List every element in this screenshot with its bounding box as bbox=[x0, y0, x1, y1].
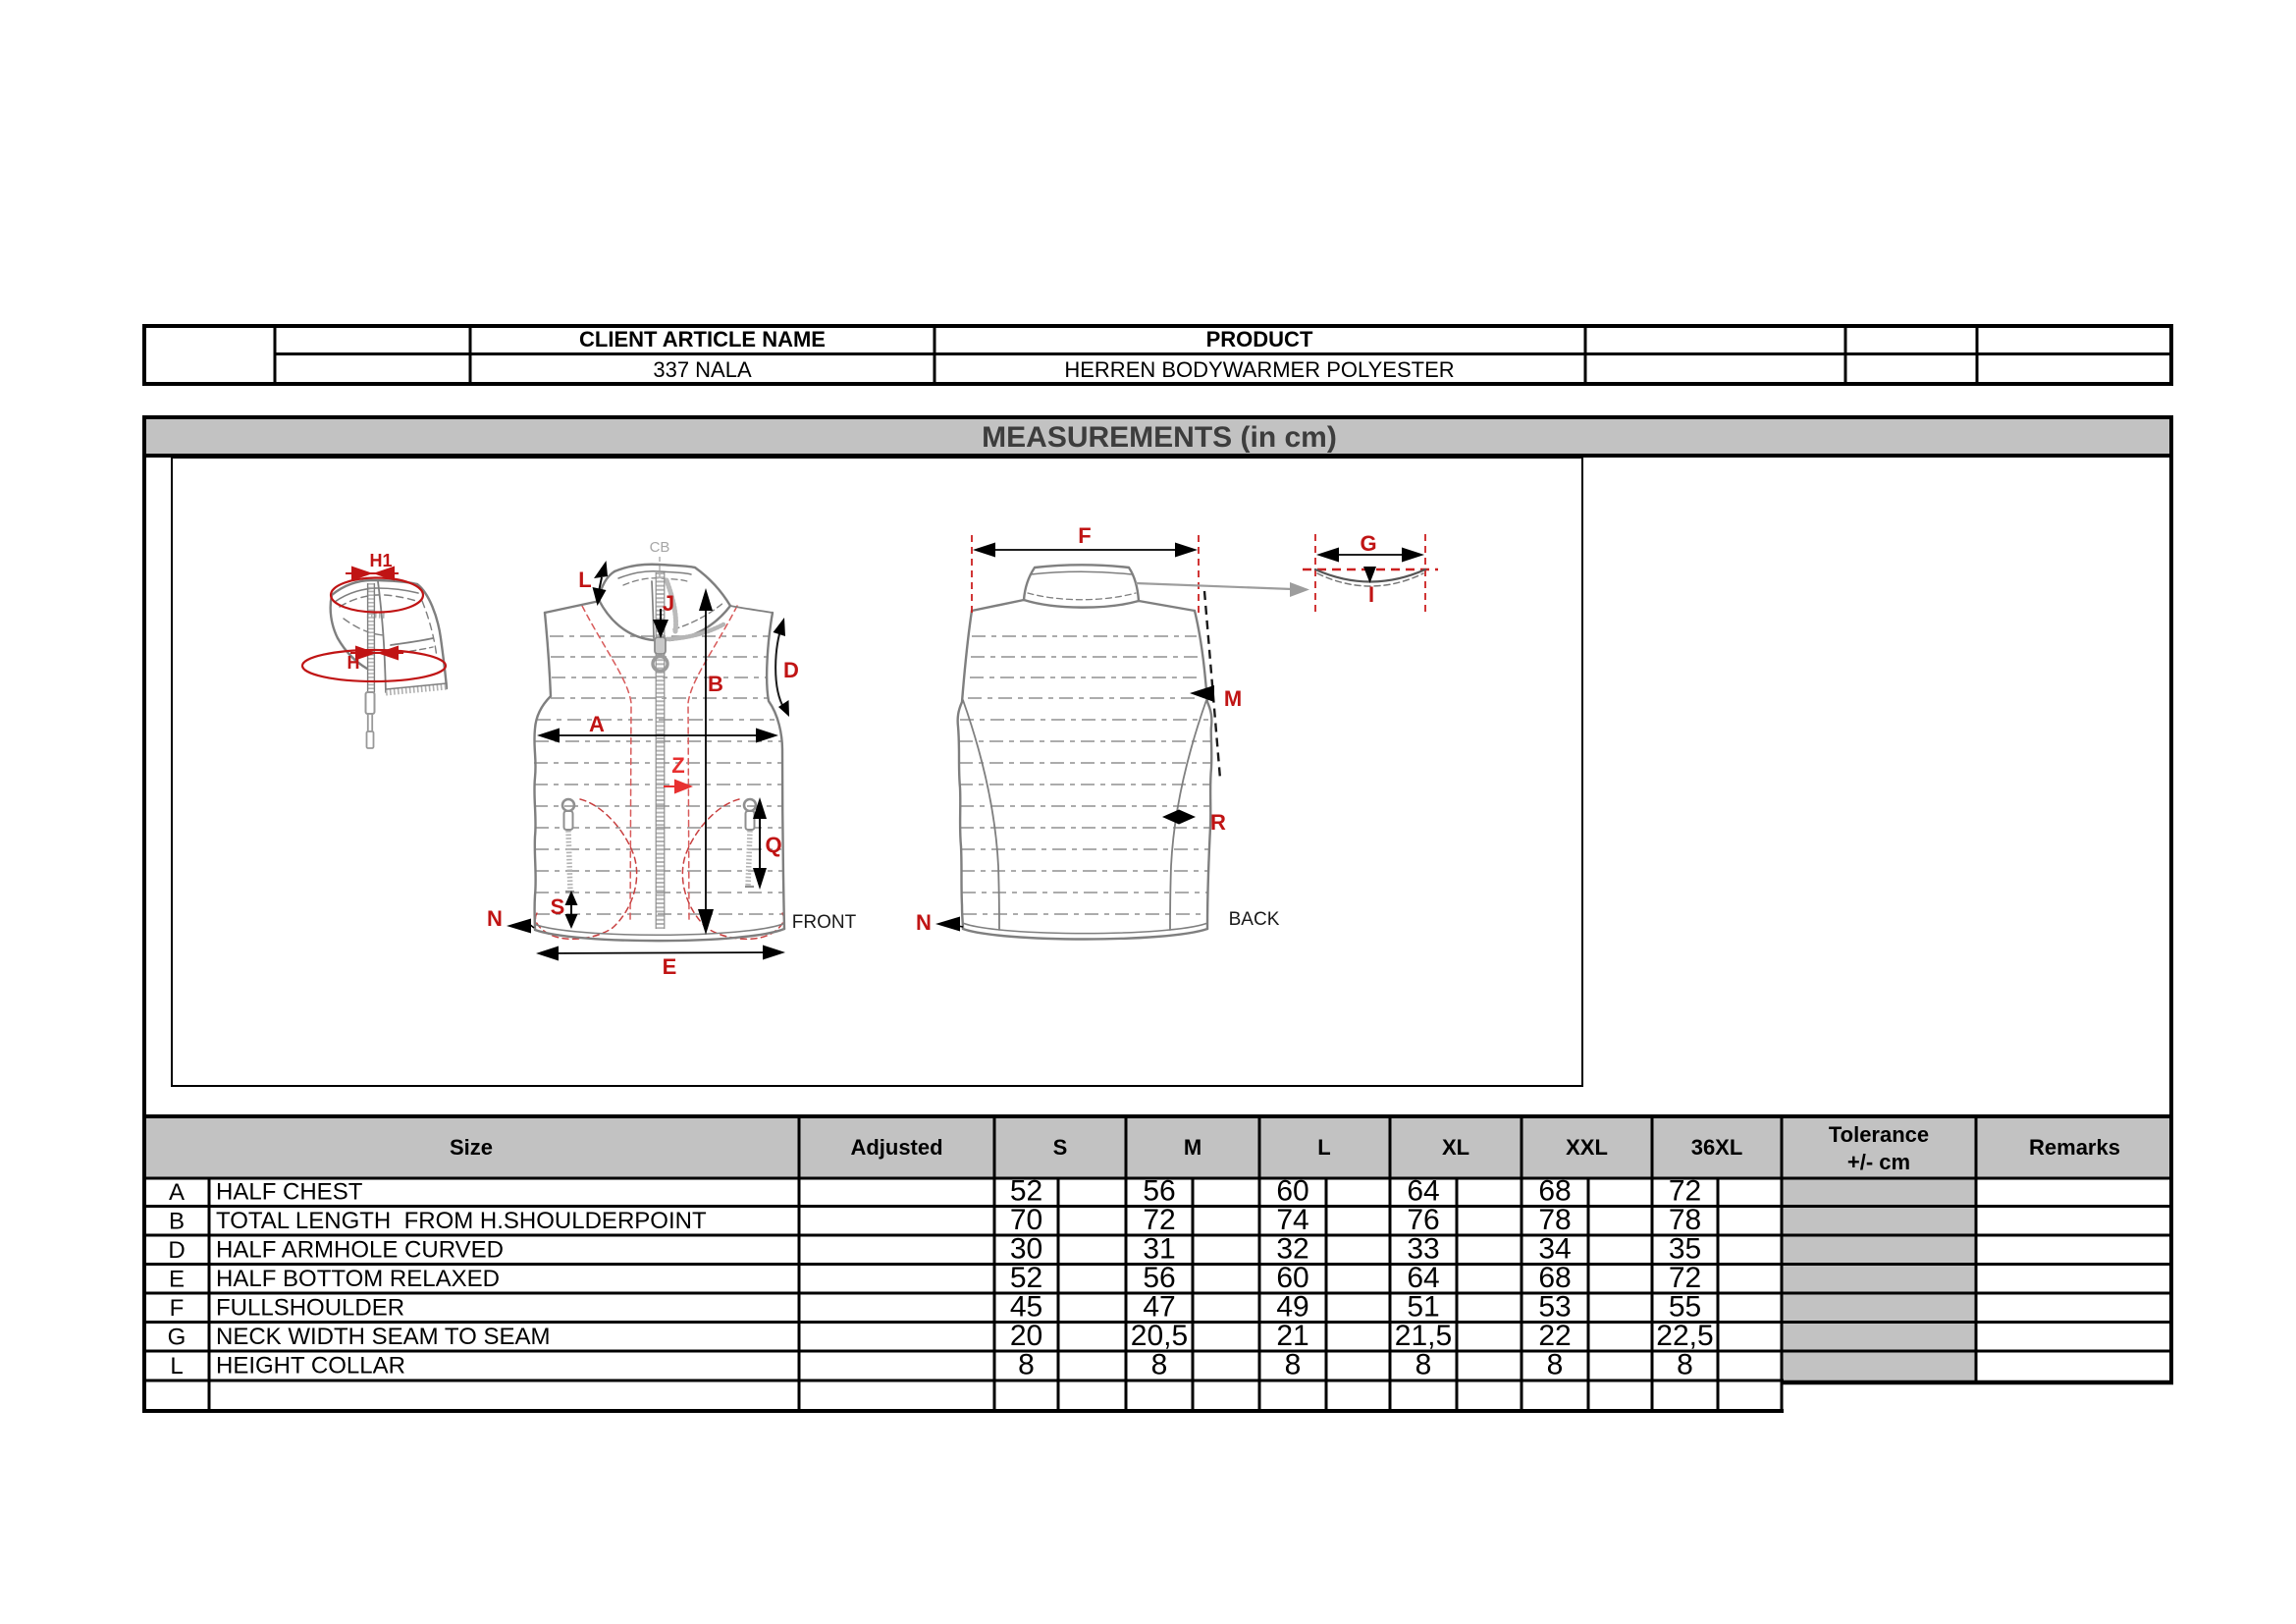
svg-text:Tolerance: Tolerance bbox=[1829, 1122, 1929, 1147]
svg-text:I: I bbox=[1368, 582, 1374, 607]
svg-text:56: 56 bbox=[1143, 1262, 1175, 1294]
svg-text:G: G bbox=[1360, 531, 1376, 556]
svg-text:BACK: BACK bbox=[1229, 909, 1280, 930]
svg-text:CB: CB bbox=[650, 539, 670, 556]
svg-text:64: 64 bbox=[1407, 1174, 1439, 1207]
svg-text:36XL: 36XL bbox=[1691, 1135, 1743, 1160]
svg-text:32: 32 bbox=[1276, 1232, 1308, 1265]
svg-text:Size: Size bbox=[450, 1135, 493, 1160]
svg-text:51: 51 bbox=[1407, 1290, 1439, 1323]
svg-text:35: 35 bbox=[1669, 1232, 1701, 1265]
svg-text:L: L bbox=[170, 1353, 183, 1380]
svg-text:60: 60 bbox=[1276, 1262, 1308, 1294]
svg-text:R: R bbox=[1210, 810, 1226, 835]
svg-text:64: 64 bbox=[1407, 1262, 1439, 1294]
svg-text:TOTAL LENGTH FROM H.SHOULDERP: TOTAL LENGTH FROM H.SHOULDERPOINT bbox=[216, 1208, 707, 1234]
svg-text:20,5: 20,5 bbox=[1131, 1320, 1188, 1352]
svg-text:33: 33 bbox=[1407, 1232, 1439, 1265]
svg-text:N: N bbox=[487, 906, 503, 931]
svg-text:49: 49 bbox=[1276, 1290, 1308, 1323]
svg-text:52: 52 bbox=[1010, 1262, 1042, 1294]
svg-text:N: N bbox=[916, 910, 932, 935]
svg-text:21: 21 bbox=[1276, 1320, 1308, 1352]
svg-text:J: J bbox=[663, 591, 674, 616]
svg-text:E: E bbox=[663, 954, 677, 979]
svg-text:E: E bbox=[169, 1266, 185, 1292]
svg-text:45: 45 bbox=[1010, 1290, 1042, 1323]
svg-text:HALF ARMHOLE CURVED: HALF ARMHOLE CURVED bbox=[216, 1236, 504, 1263]
svg-text:8: 8 bbox=[1415, 1348, 1432, 1380]
svg-text:31: 31 bbox=[1143, 1232, 1175, 1265]
svg-text:F: F bbox=[170, 1295, 185, 1322]
svg-text:68: 68 bbox=[1538, 1262, 1571, 1294]
svg-text:8: 8 bbox=[1018, 1348, 1035, 1380]
svg-text:22,5: 22,5 bbox=[1656, 1320, 1713, 1352]
svg-text:22: 22 bbox=[1538, 1320, 1571, 1352]
svg-text:47: 47 bbox=[1143, 1290, 1175, 1323]
svg-text:Remarks: Remarks bbox=[2029, 1135, 2120, 1160]
svg-text:XL: XL bbox=[1442, 1135, 1469, 1160]
svg-text:CLIENT ARTICLE NAME: CLIENT ARTICLE NAME bbox=[579, 327, 826, 352]
svg-text:PRODUCT: PRODUCT bbox=[1206, 327, 1313, 352]
svg-text:HALF BOTTOM RELAXED: HALF BOTTOM RELAXED bbox=[216, 1266, 500, 1292]
svg-text:B: B bbox=[708, 672, 723, 696]
svg-text:B: B bbox=[169, 1208, 185, 1234]
svg-text:MEASUREMENTS (in cm): MEASUREMENTS (in cm) bbox=[982, 421, 1337, 454]
svg-text:NECK WIDTH SEAM TO SEAM: NECK WIDTH SEAM TO SEAM bbox=[216, 1324, 551, 1350]
svg-text:76: 76 bbox=[1407, 1204, 1439, 1236]
svg-text:L: L bbox=[578, 568, 591, 592]
svg-text:8: 8 bbox=[1677, 1348, 1693, 1380]
svg-text:68: 68 bbox=[1538, 1174, 1571, 1207]
svg-text:M: M bbox=[1184, 1135, 1201, 1160]
svg-text:L: L bbox=[1317, 1135, 1330, 1160]
svg-text:Z: Z bbox=[671, 753, 684, 778]
svg-text:FULLSHOULDER: FULLSHOULDER bbox=[216, 1294, 404, 1321]
svg-text:72: 72 bbox=[1143, 1204, 1175, 1236]
svg-text:S: S bbox=[1053, 1135, 1068, 1160]
svg-text:72: 72 bbox=[1669, 1174, 1701, 1207]
svg-text:34: 34 bbox=[1538, 1232, 1571, 1265]
svg-text:F: F bbox=[1078, 523, 1091, 548]
svg-text:+/- cm: +/- cm bbox=[1847, 1150, 1910, 1174]
svg-text:XXL: XXL bbox=[1566, 1135, 1608, 1160]
svg-text:8: 8 bbox=[1151, 1348, 1168, 1380]
svg-text:FRONT: FRONT bbox=[792, 912, 857, 933]
svg-text:56: 56 bbox=[1143, 1174, 1175, 1207]
svg-text:G: G bbox=[168, 1324, 187, 1350]
svg-text:A: A bbox=[169, 1179, 185, 1206]
svg-text:Adjusted: Adjusted bbox=[850, 1135, 942, 1160]
svg-text:337 NALA: 337 NALA bbox=[653, 357, 752, 382]
svg-text:D: D bbox=[783, 658, 799, 682]
svg-text:H: H bbox=[347, 653, 360, 673]
svg-text:53: 53 bbox=[1538, 1290, 1571, 1323]
svg-text:78: 78 bbox=[1538, 1204, 1571, 1236]
svg-text:70: 70 bbox=[1010, 1204, 1042, 1236]
svg-text:72: 72 bbox=[1669, 1262, 1701, 1294]
svg-text:52: 52 bbox=[1010, 1174, 1042, 1207]
svg-text:78: 78 bbox=[1669, 1204, 1701, 1236]
svg-text:8: 8 bbox=[1285, 1348, 1302, 1380]
svg-text:D: D bbox=[168, 1237, 185, 1264]
svg-text:HALF CHEST: HALF CHEST bbox=[216, 1178, 363, 1205]
svg-text:8: 8 bbox=[1547, 1348, 1564, 1380]
svg-text:30: 30 bbox=[1010, 1232, 1042, 1265]
svg-text:M: M bbox=[1224, 686, 1242, 711]
svg-text:20: 20 bbox=[1010, 1320, 1042, 1352]
svg-text:S: S bbox=[551, 894, 565, 919]
svg-text:74: 74 bbox=[1276, 1204, 1308, 1236]
svg-text:60: 60 bbox=[1276, 1174, 1308, 1207]
svg-text:HEIGHT COLLAR: HEIGHT COLLAR bbox=[216, 1352, 405, 1379]
svg-text:55: 55 bbox=[1669, 1290, 1701, 1323]
svg-text:HERREN BODYWARMER POLYESTER: HERREN BODYWARMER POLYESTER bbox=[1064, 357, 1454, 382]
svg-text:Q: Q bbox=[765, 833, 781, 857]
svg-text:H1: H1 bbox=[369, 551, 392, 570]
svg-text:21,5: 21,5 bbox=[1395, 1320, 1452, 1352]
svg-text:A: A bbox=[589, 712, 605, 736]
